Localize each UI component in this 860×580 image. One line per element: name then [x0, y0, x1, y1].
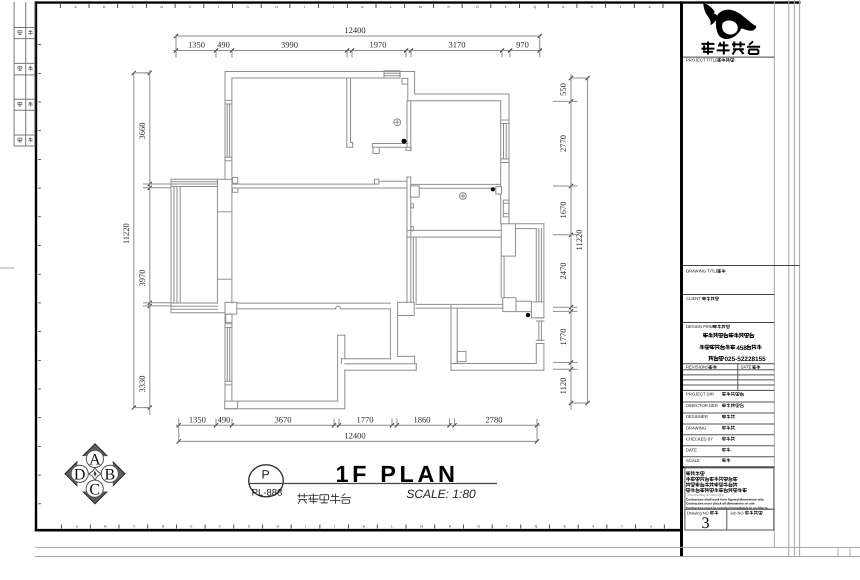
- svg-text:11220: 11220: [574, 230, 584, 251]
- svg-text:S: S: [592, 525, 594, 529]
- svg-text:DIRECTOR DER: DIRECTOR DER: [686, 403, 718, 408]
- svg-text:DRAWING TITLE: DRAWING TITLE: [686, 269, 719, 274]
- svg-text:P: P: [506, 525, 508, 529]
- svg-text:P: P: [261, 468, 269, 482]
- svg-text:P: P: [505, 5, 507, 9]
- svg-text:025-52228155: 025-52228155: [725, 356, 767, 363]
- svg-text:3660: 3660: [137, 123, 147, 140]
- svg-text:C: C: [89, 481, 100, 498]
- svg-text:490: 490: [218, 414, 231, 424]
- svg-text:1350: 1350: [188, 40, 205, 50]
- svg-text:DESIGNER: DESIGNER: [686, 414, 708, 419]
- svg-text:2470: 2470: [558, 263, 568, 280]
- svg-text:12400: 12400: [344, 25, 365, 35]
- svg-text:3330: 3330: [137, 376, 147, 393]
- svg-text:1770: 1770: [357, 414, 374, 424]
- svg-text:11220: 11220: [121, 223, 131, 244]
- svg-text:L: L: [391, 525, 393, 529]
- svg-text:Job NO: Job NO: [730, 511, 744, 516]
- svg-text:DRAWING: DRAWING: [686, 425, 706, 430]
- svg-text:2770: 2770: [558, 135, 568, 152]
- svg-text:PROJECT TITLE: PROJECT TITLE: [686, 58, 718, 63]
- svg-text:DATE: DATE: [686, 447, 697, 452]
- svg-text:1120: 1120: [558, 378, 568, 395]
- svg-text:PROJECT DIR: PROJECT DIR: [686, 392, 714, 397]
- svg-text:E: E: [189, 5, 191, 9]
- svg-text:D: D: [74, 466, 86, 483]
- svg-text:550: 550: [558, 83, 568, 96]
- svg-text:1770: 1770: [558, 329, 568, 346]
- svg-text:490: 490: [217, 40, 230, 50]
- svg-text:1860: 1860: [414, 414, 431, 424]
- svg-text:DATE: DATE: [741, 365, 752, 370]
- svg-text:3670: 3670: [275, 414, 292, 424]
- svg-text:S: S: [591, 5, 593, 9]
- svg-text:CHECKED BY: CHECKED BY: [686, 436, 713, 441]
- svg-text:12400: 12400: [344, 431, 365, 441]
- svg-text:970: 970: [516, 40, 529, 50]
- svg-text:1F PLAN: 1F PLAN: [335, 461, 458, 487]
- svg-text:CLIENT: CLIENT: [686, 296, 701, 301]
- svg-text:L: L: [390, 5, 392, 9]
- svg-text:SCALE: 1:80: SCALE: 1:80: [406, 487, 476, 501]
- svg-text:A: A: [89, 452, 101, 469]
- svg-text:PL-888: PL-888: [252, 487, 283, 498]
- svg-text:E: E: [190, 525, 192, 529]
- svg-text:458: 458: [736, 345, 747, 352]
- svg-text:3970: 3970: [137, 270, 147, 287]
- svg-text:3: 3: [702, 515, 710, 532]
- svg-text:SCALE: SCALE: [686, 458, 700, 463]
- svg-text:B: B: [104, 466, 115, 483]
- svg-text:F: F: [219, 525, 221, 529]
- svg-text:1970: 1970: [370, 40, 387, 50]
- svg-text:3990: 3990: [281, 40, 298, 50]
- svg-text:DESIGN FIRM: DESIGN FIRM: [686, 324, 714, 329]
- svg-text:3170: 3170: [449, 40, 466, 50]
- svg-text:1670: 1670: [558, 202, 568, 219]
- svg-text:F: F: [218, 5, 220, 9]
- svg-text:REVISIONS: REVISIONS: [686, 365, 709, 370]
- svg-text:1350: 1350: [189, 414, 206, 424]
- svg-text:2780: 2780: [486, 414, 503, 424]
